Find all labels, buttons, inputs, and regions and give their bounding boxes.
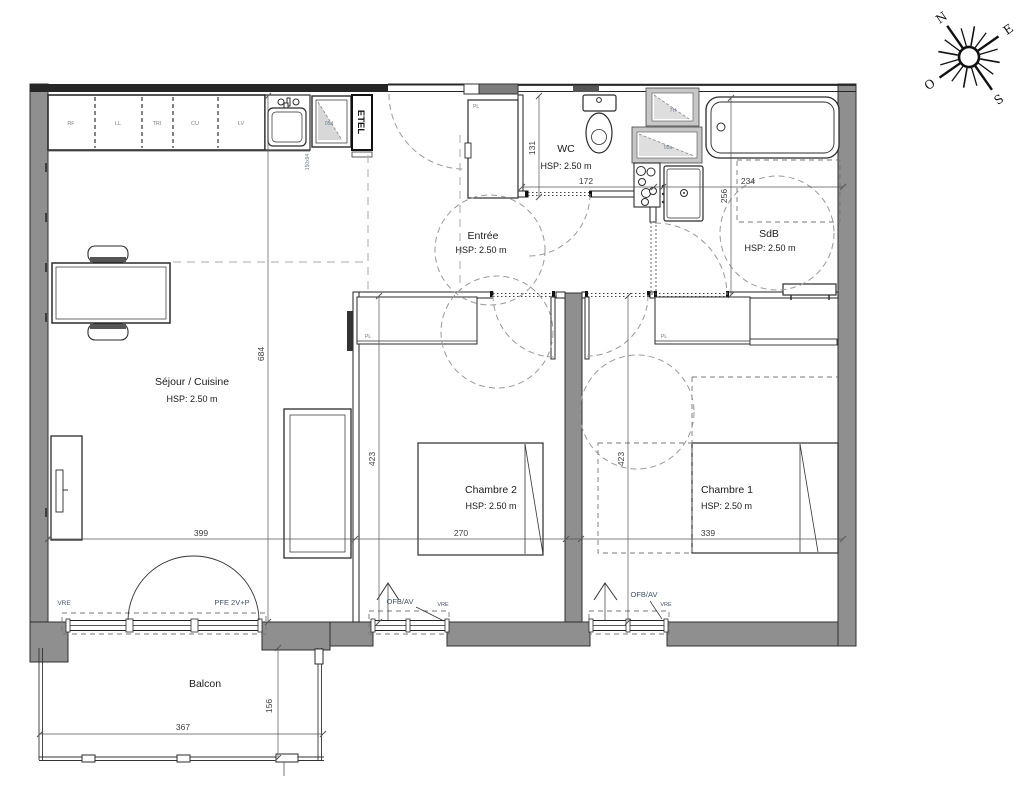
- wall-bottom-seg3: [667, 622, 838, 646]
- chair-bottom-seat: [90, 324, 126, 329]
- ch2-door-leaf: [551, 297, 555, 359]
- entry-door-frame: [464, 84, 479, 94]
- ch1-ofb-label: OFB/AV: [631, 590, 658, 599]
- ch1-door-swing: [587, 295, 648, 356]
- sink-dim-label: 150x94: [305, 154, 311, 171]
- glazing-small: 7H: [646, 88, 699, 126]
- wall-bottom-pier-mid: [262, 622, 330, 650]
- wall-bottom-seg1: [330, 622, 373, 646]
- entree-area: PL Entrée HSP: 2.50 m: [455, 100, 518, 255]
- wc-name: WC: [557, 143, 575, 155]
- compass-west: O: [922, 76, 938, 93]
- plumbing-duct: [634, 163, 664, 207]
- wc-room: WC HSP: 2.50 m: [540, 95, 616, 171]
- compass-east: E: [1001, 21, 1016, 37]
- wc-hsp: HSP: 2.50 m: [540, 161, 591, 171]
- screen-bracket: [315, 649, 323, 664]
- kitchen-unit-rf: RF: [67, 121, 75, 127]
- sejour-room: Séjour / Cuisine HSP: 2.50 m: [51, 246, 351, 558]
- bathtub: [706, 97, 839, 158]
- glazing-large-code: 05a: [664, 145, 673, 151]
- ch2-hsp: HSP: 2.50 m: [465, 501, 516, 511]
- glazing-small-code: 7H: [670, 108, 677, 114]
- ch1-shelf: [750, 339, 837, 345]
- ch1-closet-label: PL: [661, 334, 667, 340]
- chambre2-room: PL Chambre 2 HSP: 2.50 m: [347, 297, 543, 555]
- turning-circle-ch1: [580, 355, 694, 469]
- compass-hub: [955, 43, 983, 71]
- french-door-swing-left: [128, 556, 194, 620]
- etel-base: [352, 152, 372, 157]
- compass-north: N: [933, 9, 950, 26]
- kitchen-unit-lv: LV: [238, 121, 245, 127]
- entree-hsp: HSP: 2.50 m: [455, 245, 506, 255]
- sdb-hsp: HSP: 2.50 m: [744, 243, 795, 253]
- wall-wc-left: [518, 95, 523, 197]
- sejour-french-door: [62, 556, 266, 634]
- wall-bottom-seg2: [447, 622, 590, 646]
- sejour-name: Séjour / Cuisine: [155, 376, 229, 388]
- wc-door-swing: [528, 194, 590, 256]
- ch1-door-leaf: [585, 297, 589, 359]
- dim-ch1-h: 423: [616, 452, 626, 466]
- sdb-name: SdB: [759, 228, 779, 240]
- dimensions: 684 399 270 339 423 423 131 172 234 256 …: [37, 93, 846, 761]
- sejour-cabinet: [284, 409, 351, 558]
- sdb-door-swing: [655, 223, 727, 295]
- ch2-closet: [357, 297, 477, 344]
- pfe-label: PFE 2V+P: [214, 598, 249, 607]
- sejour-wall-radiator: [347, 311, 353, 351]
- dim-wc-h: 131: [527, 141, 537, 155]
- compass-rose: N E S O: [894, 0, 1025, 136]
- entry-door-swing: [389, 94, 464, 169]
- washbasin: [664, 166, 703, 221]
- entree-closet-notch: [465, 143, 471, 158]
- entree-closet: [468, 100, 518, 198]
- ch2-vre-label: VRE: [437, 602, 449, 608]
- ch1-vre-label: VRE: [660, 602, 672, 608]
- railing-post-2: [177, 755, 190, 762]
- wall-top-left: [30, 84, 388, 92]
- dim-wc-w: 172: [579, 176, 593, 186]
- dining-table: [52, 246, 170, 340]
- sink-basin-inner: [272, 112, 302, 142]
- ch2-bed: [418, 443, 543, 555]
- compass-south: S: [991, 92, 1006, 108]
- ch2-closet-label: PL: [365, 334, 371, 340]
- railing-post-1: [82, 755, 95, 762]
- wall-right: [838, 84, 856, 646]
- floor-plan-canvas: RF LL TRI CU LV 150x94 05d ETEL: [0, 0, 1025, 800]
- ch1-name: Chambre 1: [701, 484, 753, 496]
- dim-ch2-w: 270: [454, 528, 468, 538]
- kitchen-unit-tri: TRI: [153, 121, 162, 127]
- ch2-window: [369, 583, 449, 634]
- toilet: [583, 95, 616, 153]
- dim-balcon-w: 367: [176, 722, 190, 732]
- sejour-vre-label: VRE: [57, 600, 71, 607]
- sejour-radiator: [51, 436, 82, 540]
- entree-closet-label: PL: [473, 104, 479, 110]
- ch1-closet: [655, 297, 750, 344]
- dim-sejour-w: 399: [194, 528, 208, 538]
- kitchen-unit-ll: LL: [115, 121, 121, 127]
- chair-top-seat: [90, 257, 126, 262]
- etel-label: ETEL: [355, 110, 366, 134]
- french-door-swing-right: [194, 556, 259, 620]
- dim-ch2-h: 423: [367, 452, 377, 466]
- entry-door-panel: [479, 84, 518, 94]
- floor-plan: RF LL TRI CU LV 150x94 05d ETEL: [0, 0, 1025, 800]
- dim-sdb-w: 234: [741, 176, 755, 186]
- dim-sdb-h: 256: [719, 189, 729, 203]
- kitchen-window-code: 05d: [325, 121, 334, 127]
- exterior-walls: [30, 84, 856, 662]
- kitchen-window: 05d: [312, 96, 351, 147]
- kitchen: RF LL TRI CU LV 150x94 05d ETEL: [48, 95, 372, 170]
- entree-name: Entrée: [468, 230, 499, 242]
- railing-corner-box: [276, 754, 298, 762]
- balcony: Balcon: [39, 648, 324, 776]
- chambre1-room: PL Chambre 1 HSP: 2.50 m: [598, 297, 838, 553]
- sdb-reserved-zone: [737, 160, 840, 222]
- dim-ch1-w: 339: [701, 528, 715, 538]
- sejour-hsp: HSP: 2.50 m: [166, 394, 217, 404]
- wall-ch2-ch1: [565, 293, 582, 622]
- sdb-door-leaf: [651, 222, 656, 294]
- glazing-large: 05a: [632, 127, 702, 163]
- balcon-name: Balcon: [189, 678, 221, 690]
- ch2-name: Chambre 2: [465, 484, 517, 496]
- ch1-hsp: HSP: 2.50 m: [701, 501, 752, 511]
- kitchen-unit-cu: CU: [191, 121, 199, 127]
- ch2-ofb-label: OFB/AV: [387, 597, 414, 606]
- dim-sejour-h: 684: [256, 347, 266, 361]
- balcony-railing: [39, 648, 324, 761]
- dim-balcon-h: 156: [264, 699, 274, 713]
- wall-hall-ch2-b: [556, 292, 565, 298]
